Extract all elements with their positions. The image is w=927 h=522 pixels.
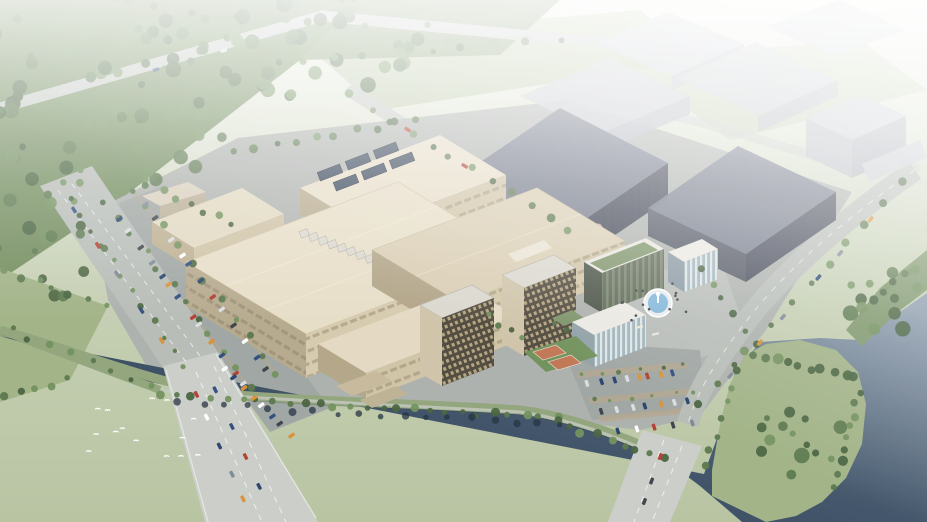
haze-veil: [0, 0, 927, 522]
aerial-rendering: [0, 0, 927, 522]
rendering-canvas: [0, 0, 927, 522]
